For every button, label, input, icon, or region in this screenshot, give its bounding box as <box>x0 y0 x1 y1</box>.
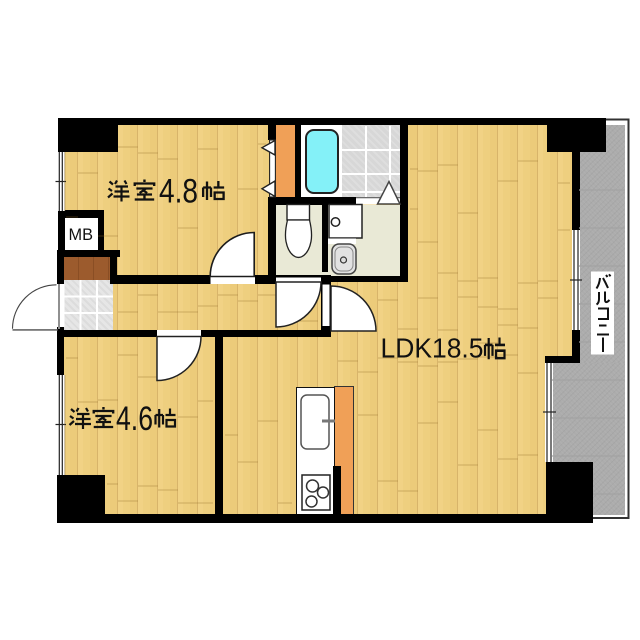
svg-text:4.8: 4.8 <box>159 173 198 211</box>
svg-text:4.6: 4.6 <box>116 400 153 438</box>
svg-text:MB: MB <box>69 225 94 244</box>
svg-text:LDK18.5: LDK18.5 <box>381 333 484 364</box>
